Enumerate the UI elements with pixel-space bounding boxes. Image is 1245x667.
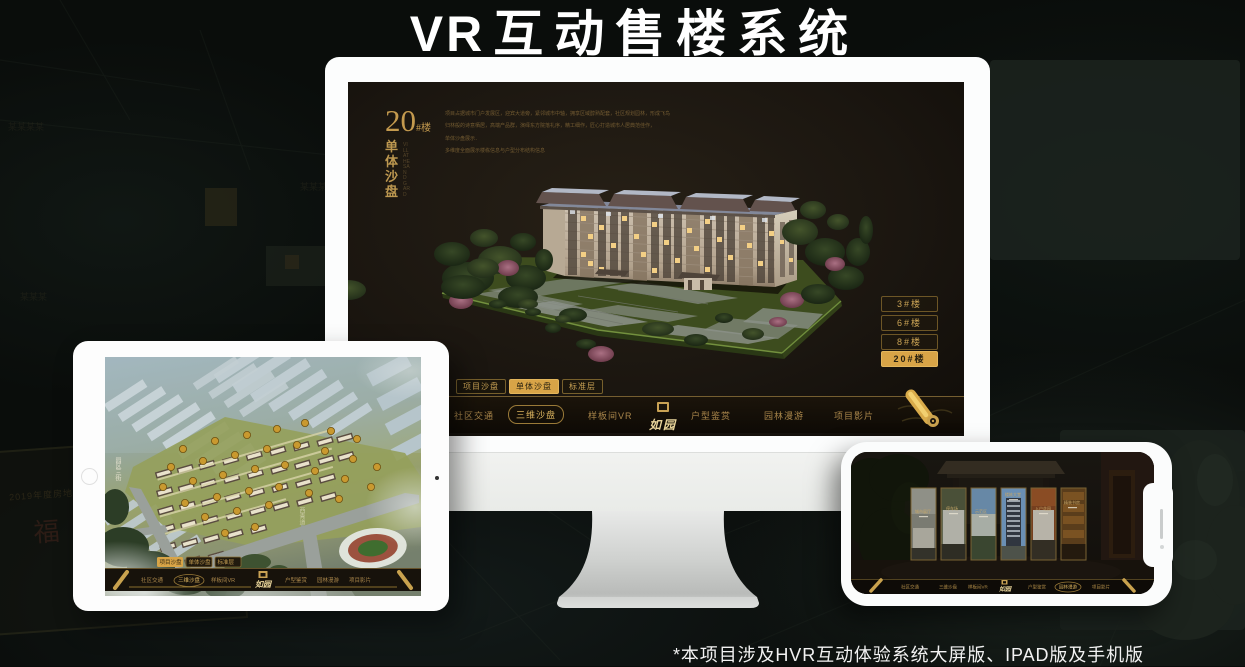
svg-text:如园: 如园	[255, 580, 273, 589]
svg-text:入户花园: 入户花园	[1035, 505, 1051, 511]
svg-text:样板间VR: 样板间VR	[211, 576, 235, 584]
svg-text:如园: 如园	[999, 585, 1012, 593]
svg-text:示范区: 示范区	[975, 508, 987, 514]
svg-text:社区交通: 社区交通	[141, 576, 164, 584]
svg-text:样板间VR: 样板间VR	[968, 584, 989, 591]
svg-text:园林漫游: 园林漫游	[1059, 584, 1077, 591]
svg-text:停车场: 停车场	[946, 505, 958, 511]
svg-text:某某某: 某某某	[20, 292, 47, 302]
svg-text:三维沙盘: 三维沙盘	[178, 576, 201, 584]
svg-text:户型鉴赏: 户型鉴赏	[1028, 584, 1046, 591]
svg-text:社区交通: 社区交通	[901, 584, 919, 591]
svg-text:园区三街: 园区三街	[114, 457, 121, 482]
svg-text:三维沙盘: 三维沙盘	[939, 584, 957, 591]
svg-text:某某某某: 某某某某	[8, 122, 44, 132]
svg-text:园林漫游: 园林漫游	[317, 576, 340, 584]
svg-text:户型鉴赏: 户型鉴赏	[285, 576, 308, 584]
svg-text:标准层: 标准层	[218, 558, 235, 566]
svg-text:精装书房: 精装书房	[1064, 499, 1080, 505]
svg-text:项目影片: 项目影片	[349, 576, 371, 584]
svg-text:项目沙盘: 项目沙盘	[160, 558, 183, 566]
svg-text:楼栋大堂: 楼栋大堂	[1005, 491, 1021, 497]
svg-text:单体沙盘: 单体沙盘	[189, 558, 212, 566]
svg-text:城市展厅: 城市展厅	[915, 508, 931, 514]
svg-text:西青道: 西青道	[298, 507, 305, 526]
svg-text:项目影片: 项目影片	[1092, 584, 1110, 591]
